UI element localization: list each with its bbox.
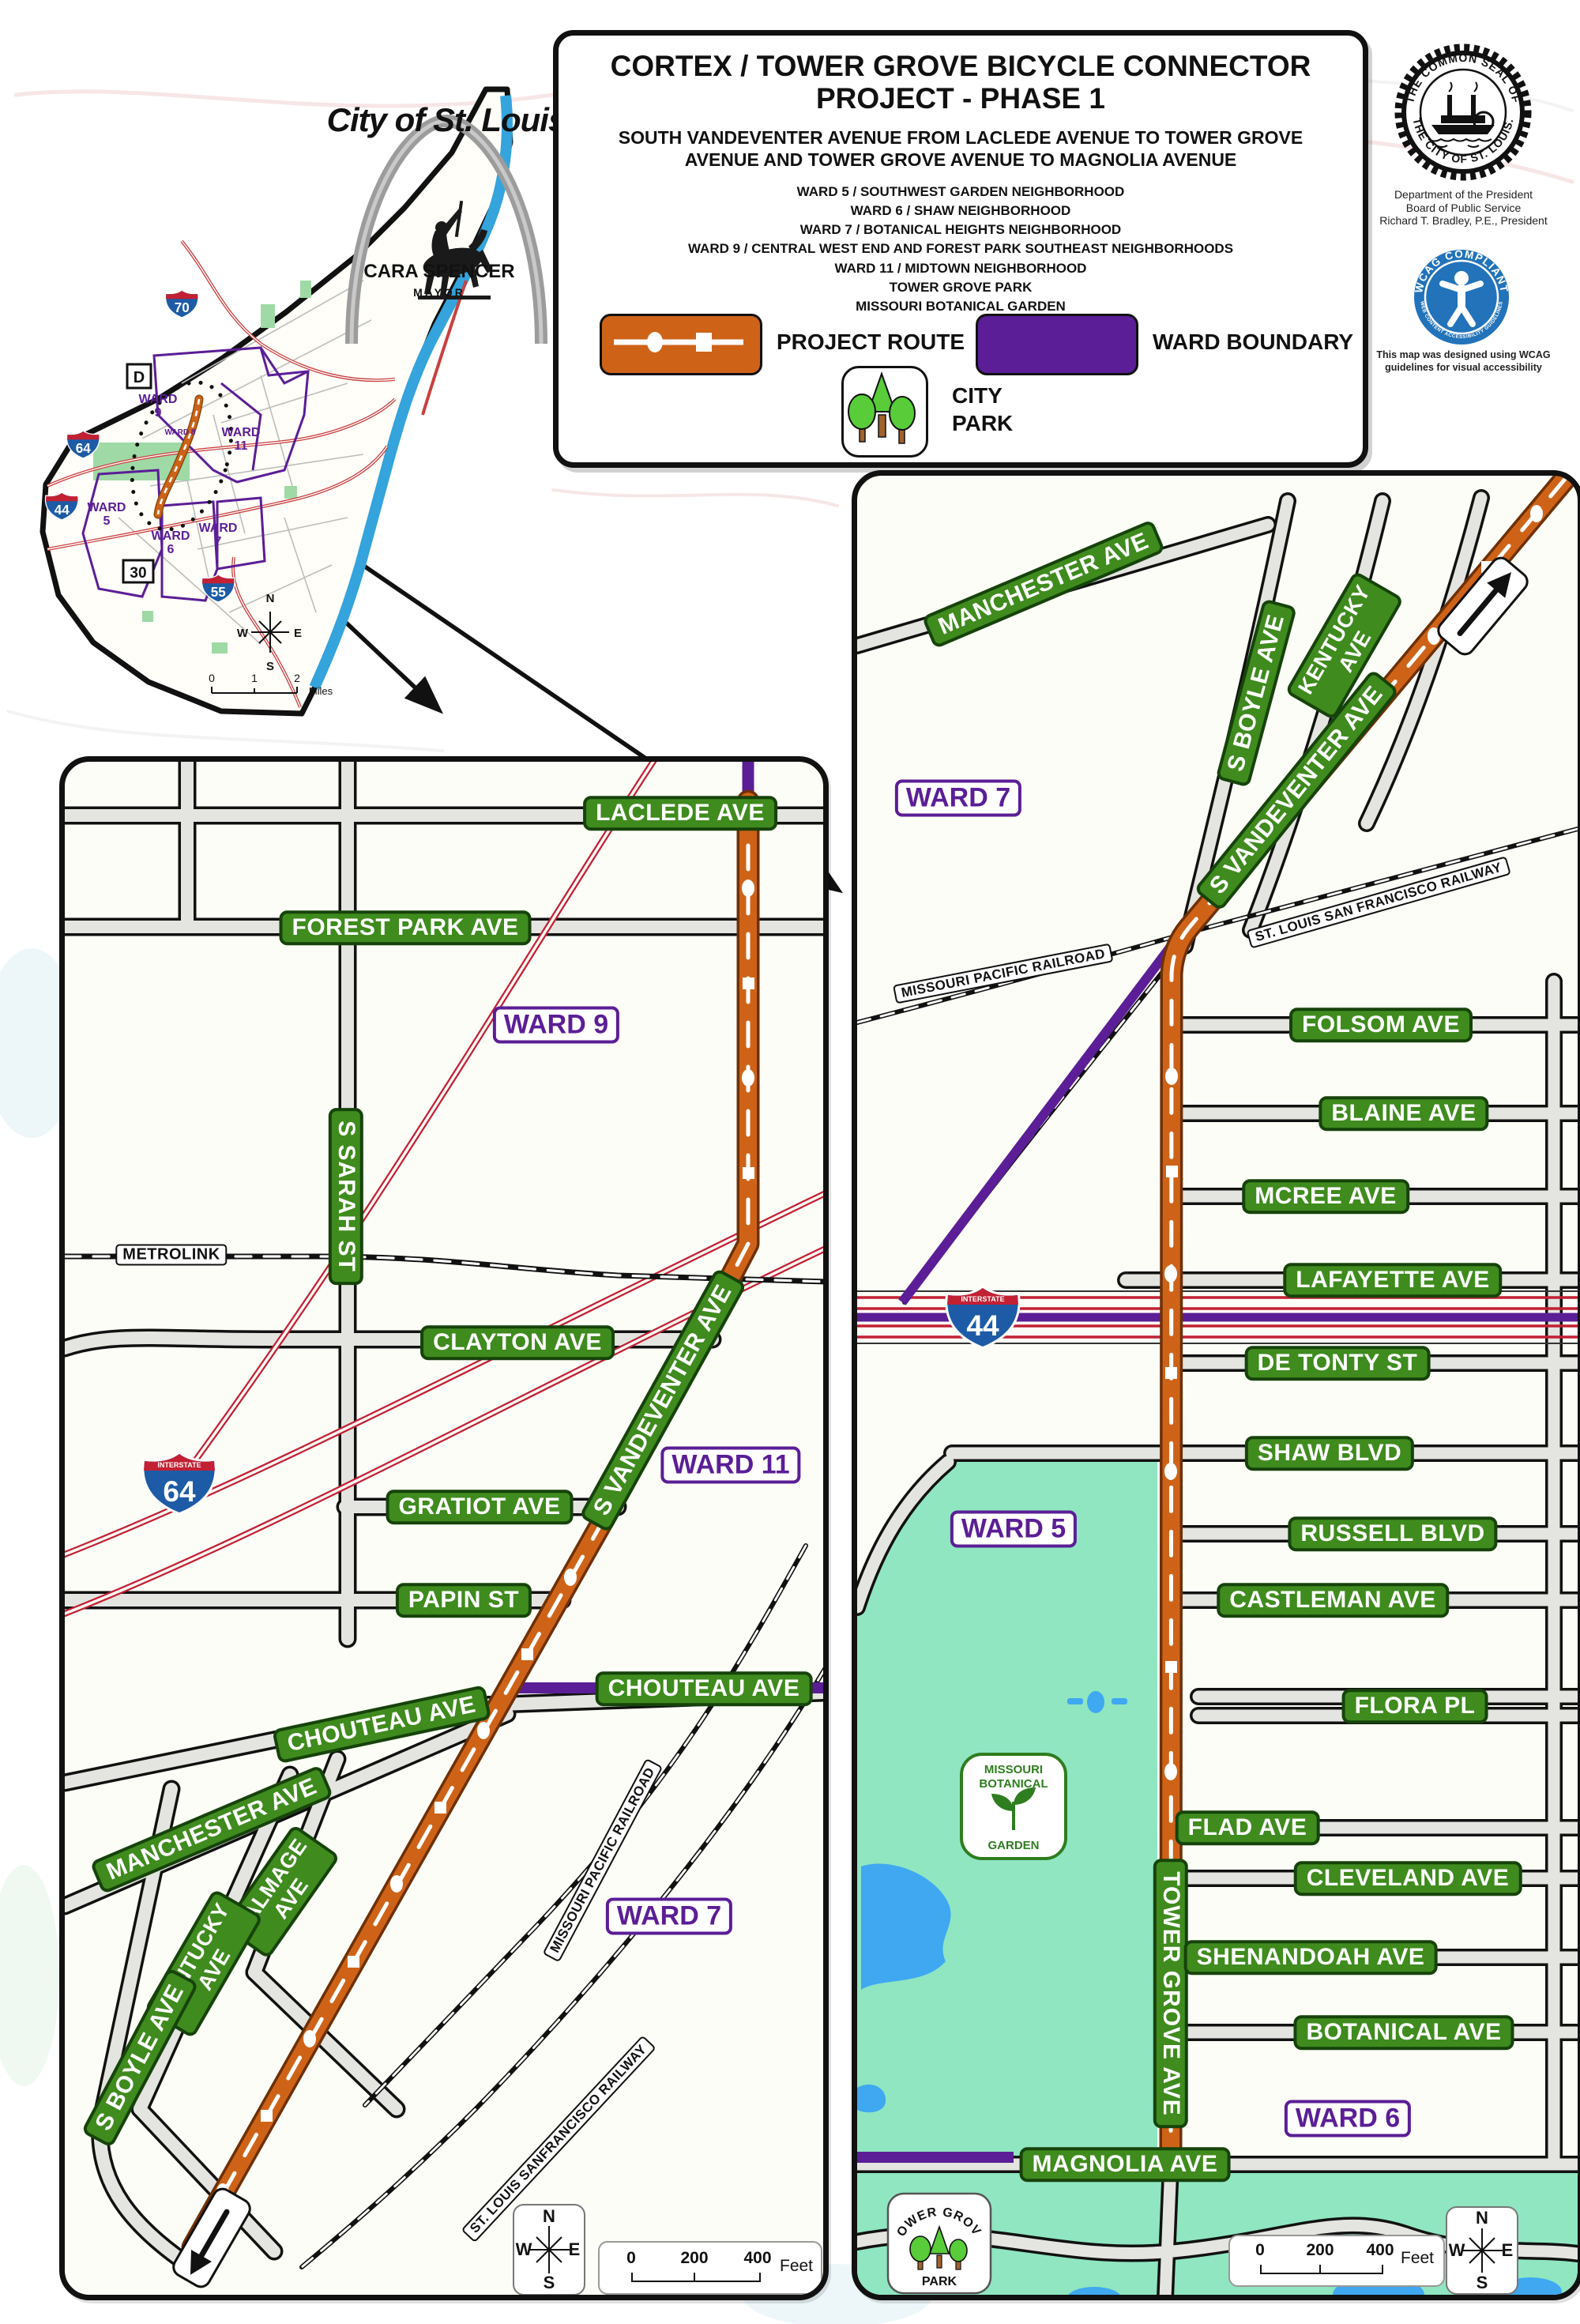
area-line: WARD 9 / CENTRAL WEST END AND FOREST PAR… xyxy=(591,239,1331,258)
interstate-64-shield: INTERSTATE 64 xyxy=(144,1454,215,1512)
svg-text:0: 0 xyxy=(209,672,215,684)
street-label-s-sarah-st: S SARAH ST xyxy=(329,1108,363,1285)
ward-boundary-lines xyxy=(504,762,823,1688)
street-label-folsom-ave: FOLSOM AVE xyxy=(1289,1008,1473,1042)
legend-route-label: PROJECT ROUTE xyxy=(777,330,965,355)
tower-grove-park-icon: TOWER GROVE PARK xyxy=(883,2183,991,2293)
left-detail-map: INTERSTATE 64 LACLEDE AVE FOREST PARK AV… xyxy=(59,756,829,2300)
street-label-lafayette-ave: LAFAYETTE AVE xyxy=(1283,1263,1502,1298)
compass-n: N xyxy=(543,2206,555,2227)
compass-rose-right: N E S W xyxy=(1446,2206,1518,2295)
svg-text:PARK: PARK xyxy=(922,2275,957,2288)
compass-w: W xyxy=(1449,2240,1465,2261)
area-line: WARD 5 / SOUTHWEST GARDEN NEIGHBORHOOD xyxy=(591,183,1331,202)
project-title: CORTEX / TOWER GROVE BICYCLE CONNECTOR P… xyxy=(591,50,1331,115)
scale-unit: Feet xyxy=(780,2257,813,2276)
scale-200: 200 xyxy=(1306,2241,1334,2260)
compass-rose-left: N E S W xyxy=(513,2204,585,2296)
inset-ward-7-label: WARD 7 xyxy=(199,522,238,549)
legend-route-swatch xyxy=(600,314,762,375)
seal-credits: Department of the President Board of Pub… xyxy=(1363,188,1564,228)
compass-n: N xyxy=(1476,2208,1488,2228)
svg-text:INTERSTATE: INTERSTATE xyxy=(157,1461,201,1469)
svg-text:55: 55 xyxy=(211,585,227,600)
inset-ward-11-label: WARD 11 xyxy=(222,427,261,454)
project-areas: WARD 5 / SOUTHWEST GARDEN NEIGHBORHOOD W… xyxy=(591,183,1331,316)
area-line: WARD 7 / BOTANICAL HEIGHTS NEIGHBORHOOD xyxy=(591,220,1331,239)
street-label-gratiot-ave: GRATIOT AVE xyxy=(386,1490,574,1524)
scale-bar-right: 0 200 400 Feet xyxy=(1228,2235,1445,2287)
street-label-shaw-blvd: SHAW BLVD xyxy=(1245,1436,1414,1471)
svg-text:1: 1 xyxy=(251,672,258,684)
mayor-title: MAYOR xyxy=(413,286,465,299)
street-label-cleveland-ave: CLEVELAND AVE xyxy=(1294,1861,1522,1896)
compass-s: S xyxy=(544,2273,555,2293)
compass-w: W xyxy=(516,2239,532,2260)
left-map-geometry: INTERSTATE 64 xyxy=(65,762,823,2295)
area-line: WARD 11 / MIDTOWN NEIGHBORHOOD xyxy=(591,259,1331,278)
street-label-blaine-ave: BLAINE AVE xyxy=(1319,1096,1488,1131)
svg-text:44: 44 xyxy=(55,503,70,518)
right-detail-map: INTERSTATE 44 MISSOURI BOTANICAL GARDEN … xyxy=(852,470,1580,2300)
compass-s: S xyxy=(1477,2273,1488,2293)
street-label-papin-st: PAPIN ST xyxy=(396,1583,532,1618)
area-line: WARD 6 / SHAW NEIGHBORHOOD xyxy=(591,202,1331,220)
scale-0: 0 xyxy=(1255,2241,1265,2260)
svg-text:N: N xyxy=(266,592,275,605)
svg-text:MISSOURI: MISSOURI xyxy=(984,1763,1043,1776)
inset-route-30-marker: 30 xyxy=(123,560,153,582)
street-label-flad-ave: FLAD AVE xyxy=(1176,1810,1320,1845)
svg-text:S: S xyxy=(266,660,274,673)
compass-e: E xyxy=(1502,2240,1514,2261)
route-direction-arrow-south xyxy=(170,2186,253,2290)
svg-text:30: 30 xyxy=(130,565,146,582)
credit-line: Board of Public Service xyxy=(1363,202,1564,215)
street-label-de-tonty-st: DE TONTY ST xyxy=(1245,1346,1431,1380)
svg-text:INTERSTATE: INTERSTATE xyxy=(961,1295,1004,1303)
mayor-name: CARA SPENCER xyxy=(363,261,514,283)
street-label-laclede-ave: LACLEDE AVE xyxy=(583,796,777,831)
wcag-badge: WCAG COMPLIANT WEB CONTENT ACCESSIBILITY… xyxy=(1411,247,1512,348)
scale-bar-left: 0 200 400 Feet xyxy=(598,2241,822,2295)
ward-6-label: WARD 6 xyxy=(1285,2100,1411,2138)
compass-e: E xyxy=(569,2239,581,2260)
svg-text:44: 44 xyxy=(966,1309,999,1342)
svg-text:2: 2 xyxy=(294,672,300,684)
svg-text:Miles: Miles xyxy=(309,685,333,697)
inset-ward-6-label: WARD 6 xyxy=(152,530,190,557)
inset-ward-8-label: WARD 8 xyxy=(165,429,196,438)
map-sheet: { "colors": { "project_route": "#CE6318"… xyxy=(0,0,1580,2324)
inset-ward-5-label: WARD 5 xyxy=(88,502,126,529)
area-line: TOWER GROVE PARK xyxy=(591,278,1331,297)
scale-0: 0 xyxy=(626,2249,636,2268)
scale-400: 400 xyxy=(743,2249,771,2268)
street-label-tower-grove-ave: TOWER GROVE AVE xyxy=(1153,1859,1188,2128)
svg-text:70: 70 xyxy=(175,300,190,315)
svg-text:D: D xyxy=(134,369,145,386)
inset-route-d-marker: D xyxy=(127,364,151,388)
legend-park-label: CITY PARK xyxy=(952,382,1031,437)
ward-5-label: WARD 5 xyxy=(950,1511,1077,1548)
street-label-clayton-ave: CLAYTON AVE xyxy=(420,1325,615,1360)
ward-9-label: WARD 9 xyxy=(493,1007,619,1044)
legend-ward-label: WARD BOUNDARY xyxy=(1153,330,1353,355)
legend-ward-swatch xyxy=(976,314,1138,375)
inset-ward-9-label: WARD 9 xyxy=(139,394,178,420)
svg-text:BOTANICAL: BOTANICAL xyxy=(979,1777,1048,1791)
ward-7-label-right: WARD 7 xyxy=(895,780,1021,817)
credit-line: Richard T. Bradley, P.E., President xyxy=(1363,214,1564,228)
svg-text:E: E xyxy=(294,627,302,640)
wcag-caption-line: This map was designed using WCAG xyxy=(1375,349,1552,362)
metrolink-label: METROLINK xyxy=(115,1245,227,1266)
city-park-trees-icon xyxy=(841,366,924,453)
city-seal: THE COMMON SEAL OF THE CITY OF ST. LOUIS… xyxy=(1392,41,1534,183)
inset-shield-70: 70 xyxy=(166,291,198,317)
svg-text:64: 64 xyxy=(76,441,92,456)
scale-400: 400 xyxy=(1366,2241,1394,2260)
ward-7-label-left: WARD 7 xyxy=(606,1898,732,1935)
street-label-forest-park-ave: FOREST PARK AVE xyxy=(280,910,532,945)
street-label-castleman-ave: CASTLEMAN AVE xyxy=(1217,1583,1449,1618)
street-label-mcree-ave: MCREE AVE xyxy=(1242,1179,1409,1214)
svg-text:W: W xyxy=(237,627,249,640)
missouri-botanical-garden-icon: MISSOURI BOTANICAL GARDEN xyxy=(961,1754,1066,1859)
svg-text:64: 64 xyxy=(163,1475,196,1508)
project-subtitle: SOUTH VANDEVENTER AVENUE FROM LACLEDE AV… xyxy=(591,127,1331,171)
project-route-line xyxy=(193,801,748,2247)
svg-text:GARDEN: GARDEN xyxy=(987,1839,1039,1852)
legend-park-swatch xyxy=(841,366,928,458)
wcag-caption: This map was designed using WCAG guideli… xyxy=(1375,349,1552,374)
street-label-russell-blvd: RUSSELL BLVD xyxy=(1288,1516,1497,1551)
scale-unit: Feet xyxy=(1401,2249,1434,2268)
scale-200: 200 xyxy=(680,2249,708,2268)
street-label-botanical-ave: BOTANICAL AVE xyxy=(1293,2015,1514,2050)
credit-line: Department of the President xyxy=(1363,188,1564,202)
street-label-magnolia-ave: MAGNOLIA AVE xyxy=(1020,2147,1231,2182)
street-label-shenandoah-ave: SHENANDOAH AVE xyxy=(1184,1940,1438,1975)
wcag-caption-line: guidelines for visual accessibility xyxy=(1375,362,1552,375)
street-label-flora-pl: FLORA PL xyxy=(1342,1689,1488,1723)
title-block: CORTEX / TOWER GROVE BICYCLE CONNECTOR P… xyxy=(553,30,1368,468)
street-label-chouteau-ave-east: CHOUTEAU AVE xyxy=(596,1671,813,1706)
ward-11-label: WARD 11 xyxy=(660,1447,800,1484)
city-logo-title: City of St. Louis xyxy=(327,101,566,139)
